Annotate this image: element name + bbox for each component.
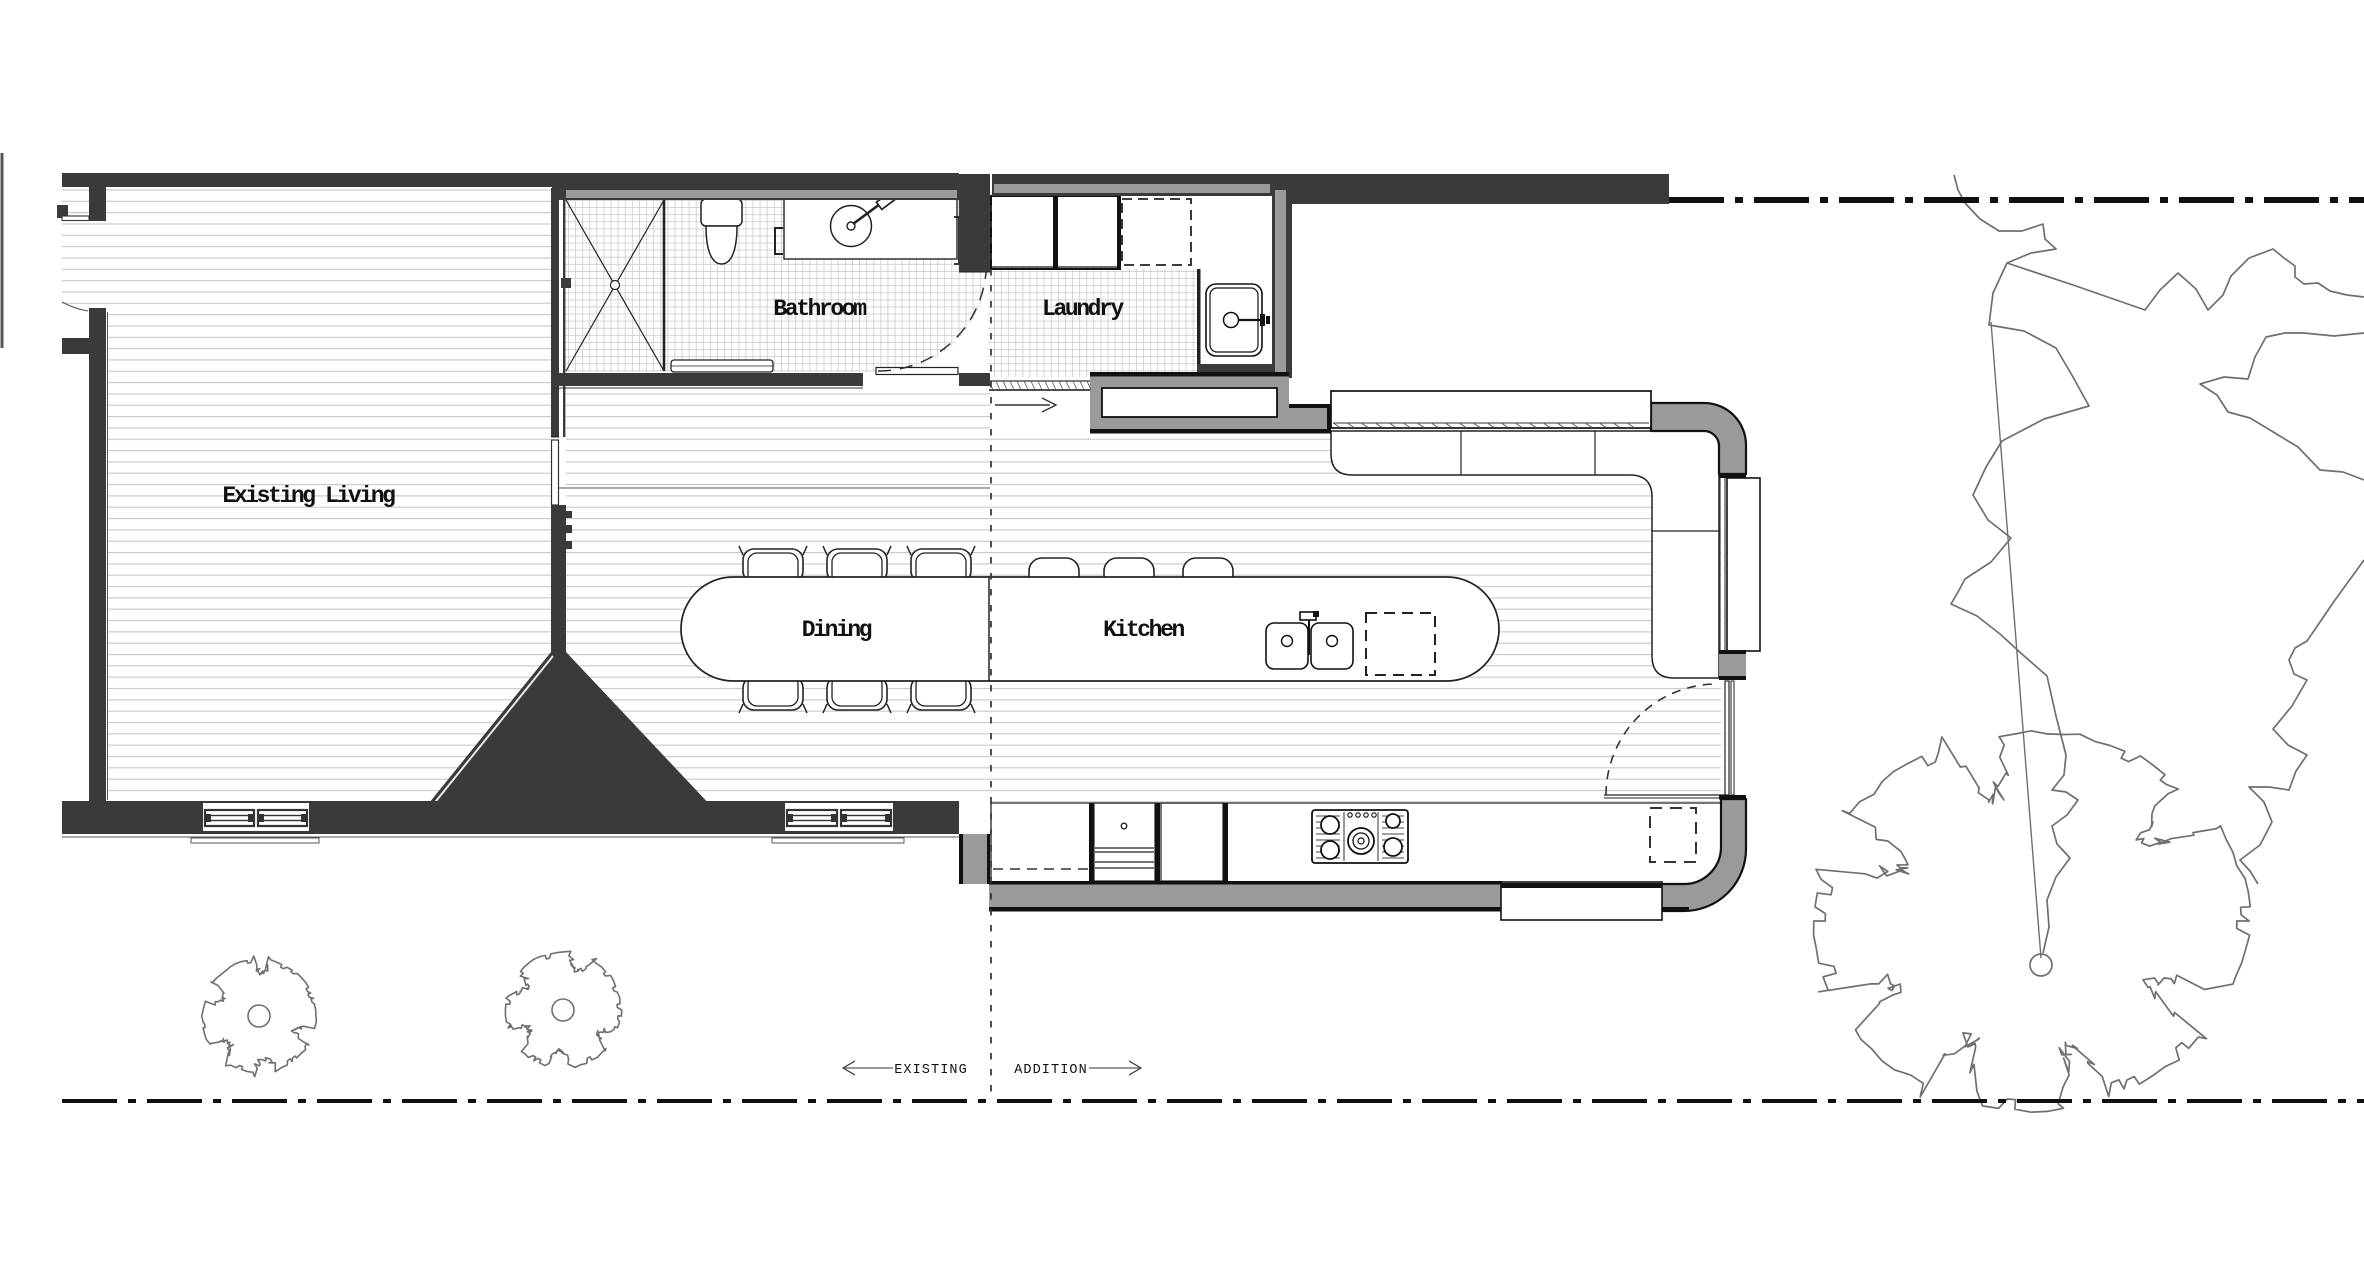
svg-text:Existing Living: Existing Living [222, 483, 395, 509]
svg-text:Kitchen: Kitchen [1103, 617, 1184, 643]
svg-text:EXISTING: EXISTING [894, 1063, 968, 1078]
svg-text:ADDITION: ADDITION [1014, 1063, 1088, 1078]
svg-text:Bathroom: Bathroom [773, 296, 866, 322]
svg-text:Dining: Dining [802, 617, 872, 643]
svg-text:Laundry: Laundry [1042, 296, 1124, 322]
